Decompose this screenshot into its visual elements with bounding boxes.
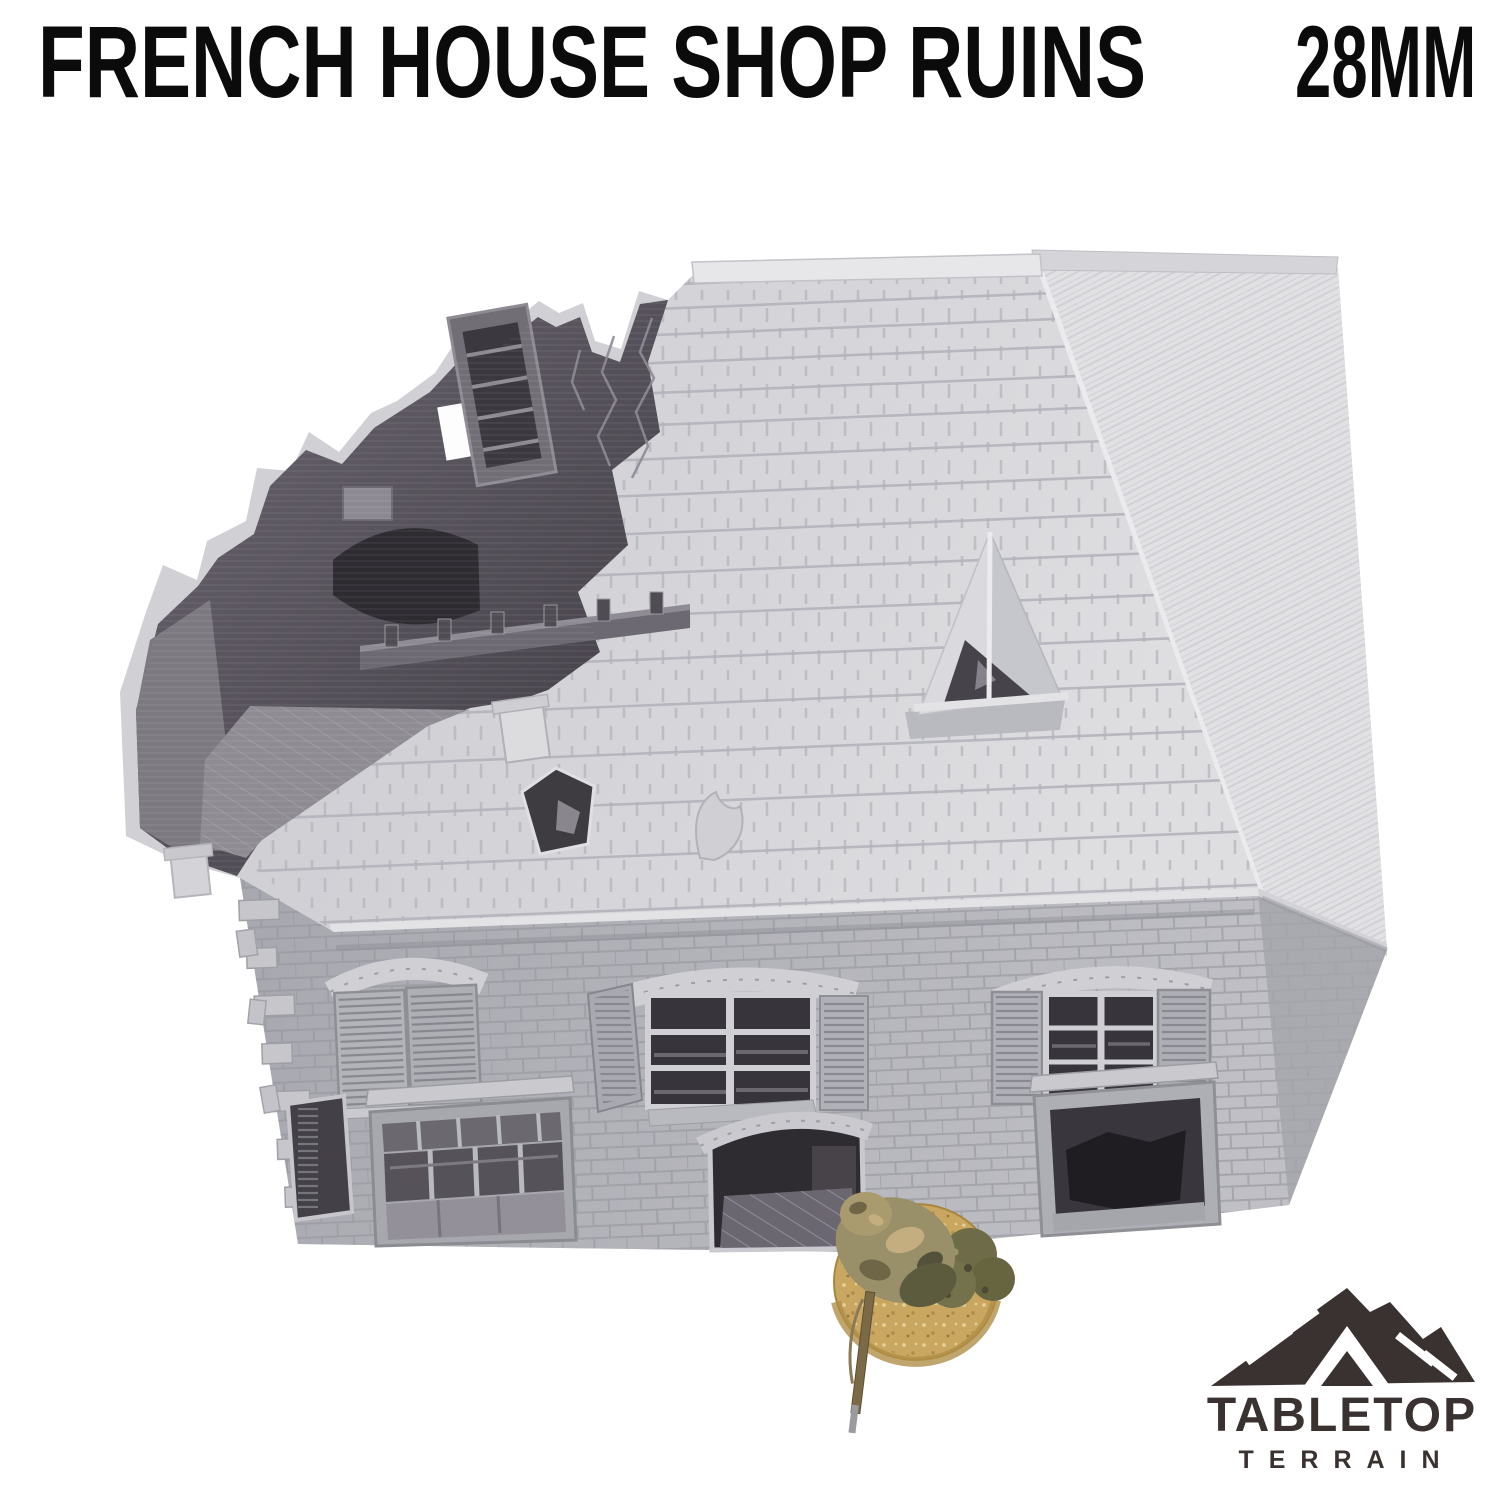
- product-photo-page: FRENCH HOUSE SHOP RUINS 28MM: [0, 0, 1500, 1500]
- ruined-house-model: [120, 230, 1420, 1260]
- storefront-right: [1030, 1062, 1220, 1236]
- window-upper-middle: [588, 980, 868, 1126]
- brand-subname: TERRAIN: [1209, 1446, 1484, 1475]
- brand-name: TABLETOP: [1200, 1392, 1484, 1440]
- product-photo: [0, 0, 1500, 1500]
- roof-ridge-back: [1032, 250, 1338, 274]
- brand-logo: TABLETOP TERRAIN: [1200, 1280, 1484, 1475]
- corner-post: [164, 844, 217, 899]
- window-ground-corner: [288, 1096, 352, 1220]
- mountain-icon: [1204, 1280, 1480, 1388]
